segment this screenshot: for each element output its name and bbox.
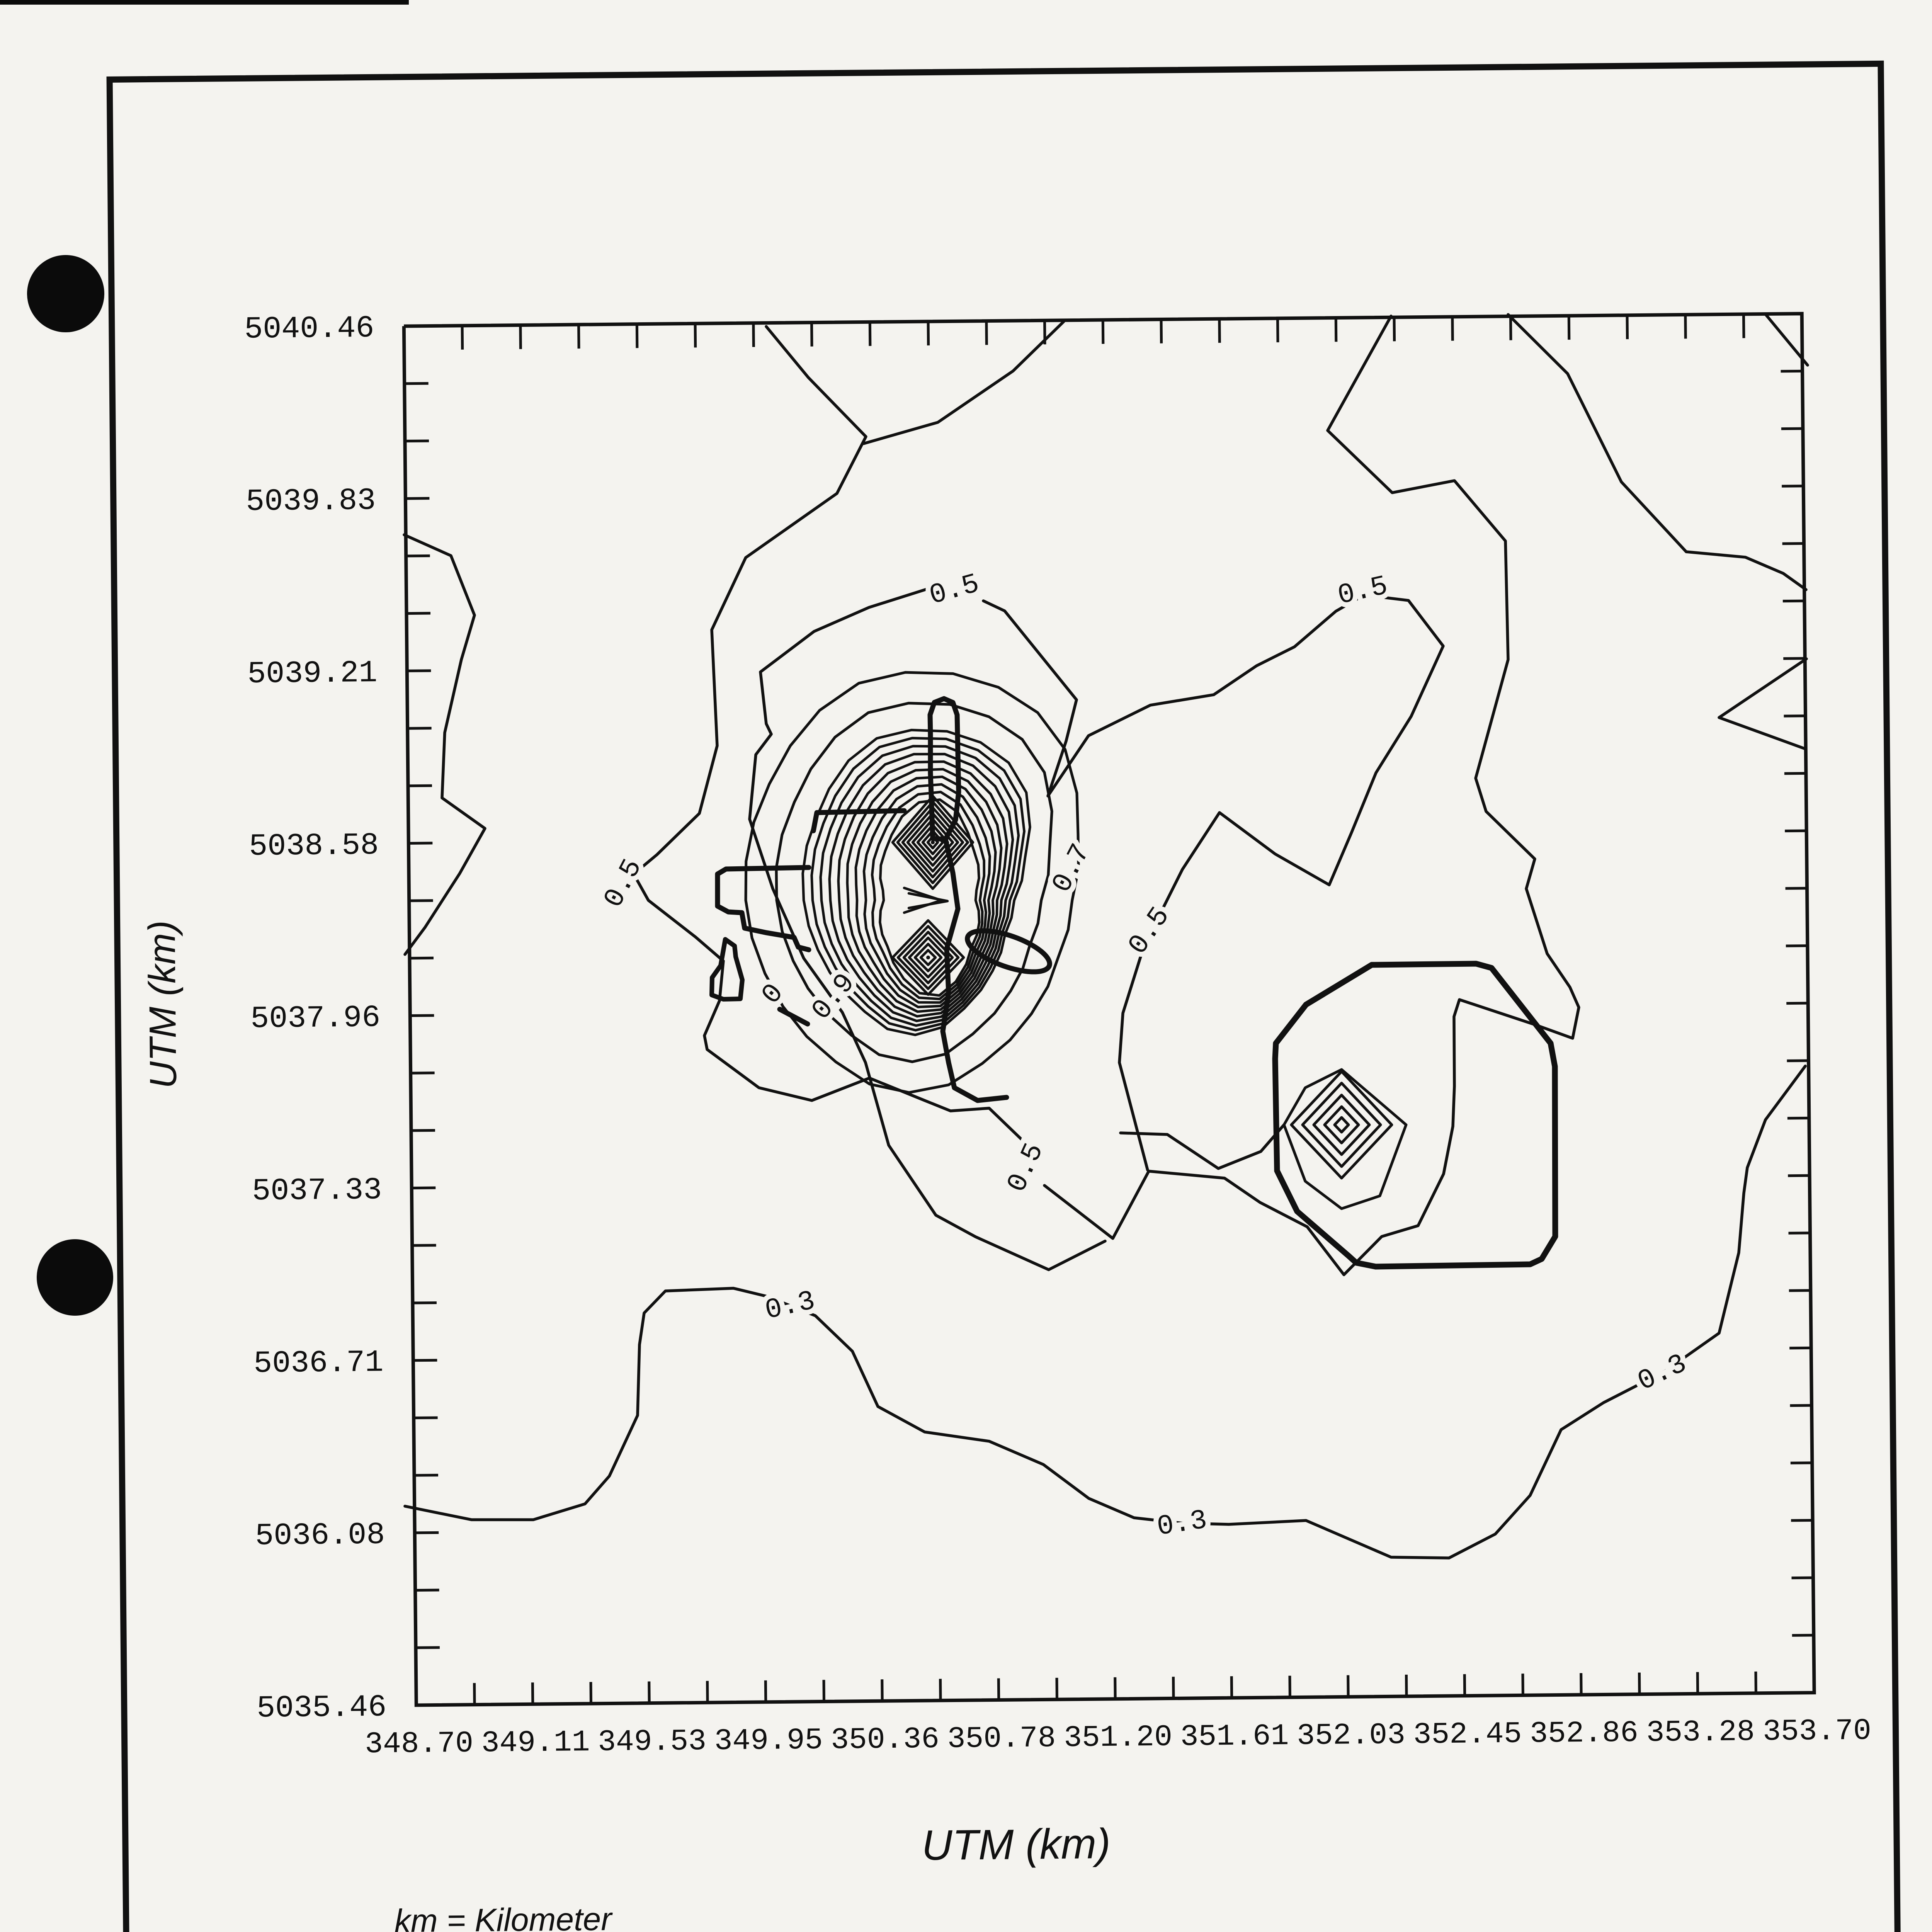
svg-text:km = Kilometer: km = Kilometer (394, 1901, 613, 1932)
svg-text:UTM (km): UTM (km) (140, 920, 184, 1089)
svg-text:350.36: 350.36 (831, 1723, 940, 1758)
svg-text:5039.83: 5039.83 (246, 483, 376, 520)
svg-text:351.20: 351.20 (1064, 1720, 1173, 1755)
svg-text:5036.71: 5036.71 (253, 1345, 384, 1381)
svg-text:350.78: 350.78 (947, 1721, 1056, 1757)
svg-text:349.95: 349.95 (714, 1724, 823, 1759)
svg-text:5040.46: 5040.46 (244, 311, 374, 347)
svg-text:353.70: 353.70 (1763, 1714, 1872, 1749)
svg-text:348.70: 348.70 (365, 1727, 474, 1762)
svg-text:349.11: 349.11 (481, 1726, 590, 1761)
svg-text:352.45: 352.45 (1413, 1717, 1522, 1752)
svg-text:5037.96: 5037.96 (250, 1000, 381, 1037)
svg-text:UTM (km): UTM (km) (922, 1820, 1111, 1869)
svg-text:5036.08: 5036.08 (255, 1518, 385, 1554)
svg-text:349.53: 349.53 (598, 1725, 707, 1760)
svg-text:5037.33: 5037.33 (252, 1173, 382, 1209)
svg-text:351.61: 351.61 (1180, 1719, 1289, 1755)
svg-text:352.86: 352.86 (1530, 1716, 1639, 1752)
svg-text:353.28: 353.28 (1646, 1715, 1755, 1750)
svg-text:5039.21: 5039.21 (247, 656, 378, 692)
svg-text:5035.46: 5035.46 (257, 1690, 387, 1726)
svg-text:5038.58: 5038.58 (249, 828, 379, 864)
svg-text:352.03: 352.03 (1297, 1718, 1406, 1753)
